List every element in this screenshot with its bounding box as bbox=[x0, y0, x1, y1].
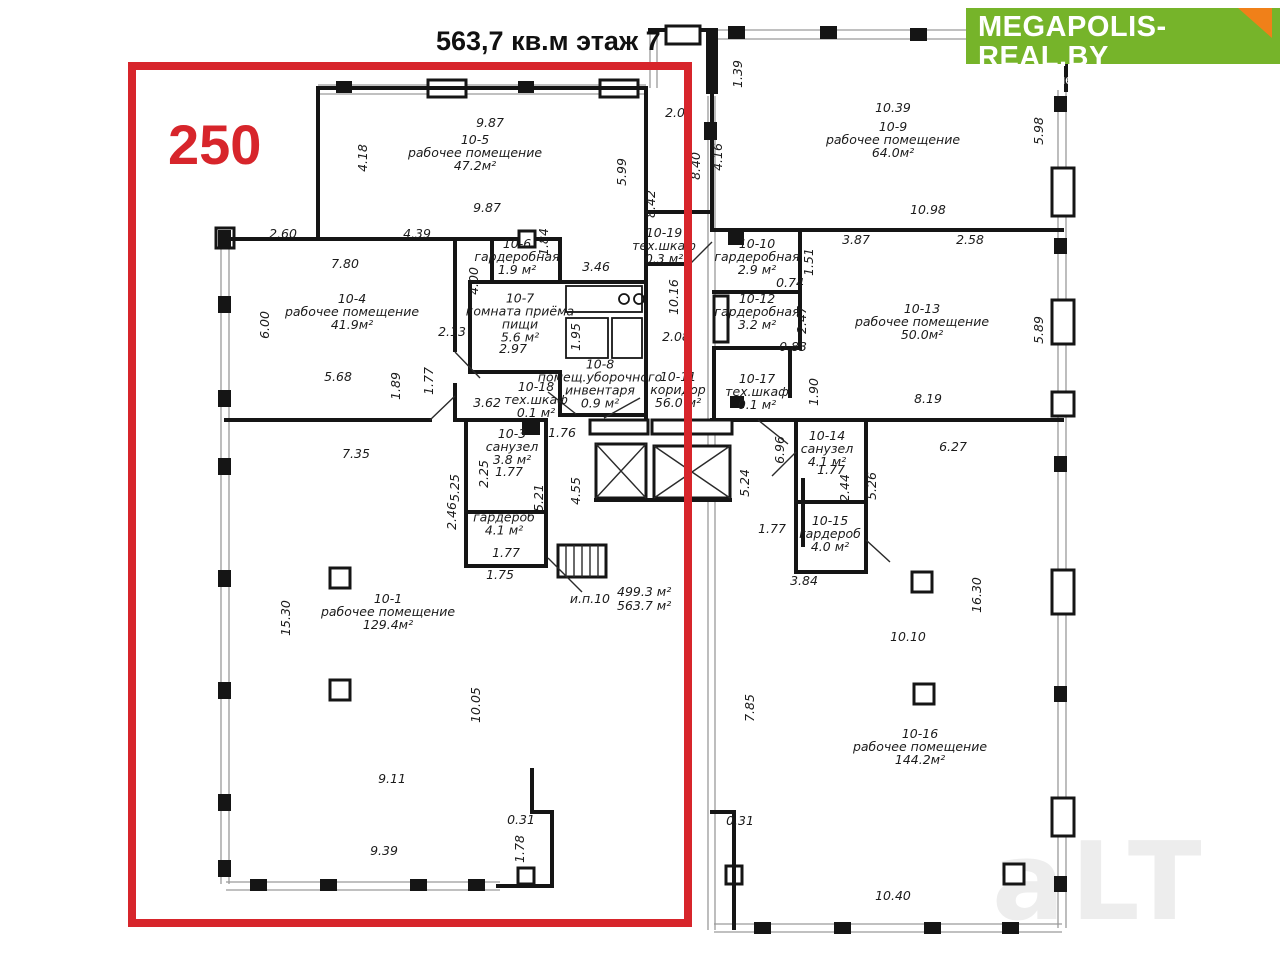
logo-fold-icon bbox=[1238, 8, 1272, 38]
dimension-label: 4.16 bbox=[710, 143, 725, 171]
logo-tagline: портал о коммерческой недвижимости в Бел… bbox=[978, 72, 1270, 104]
dimension-label: 1.39 bbox=[730, 60, 745, 88]
room-label: 0.1 м² bbox=[738, 397, 776, 412]
room-label: 4.0 м² bbox=[811, 539, 849, 554]
room-label: 64.0м² bbox=[872, 145, 914, 160]
dimension-label: 2.58 bbox=[956, 232, 984, 247]
page-title: 563,7 кв.м этаж 7 bbox=[436, 26, 661, 57]
dimension-label: 3.87 bbox=[842, 232, 870, 247]
room-label: 2.9 м² bbox=[738, 262, 776, 277]
dimension-label: 6.96 bbox=[772, 436, 787, 464]
highlight-number: 250 bbox=[168, 112, 261, 177]
dimension-label: 2.47 bbox=[794, 306, 809, 334]
dimension-label: 2.44 bbox=[837, 474, 852, 502]
dimension-label: 5.24 bbox=[737, 469, 752, 497]
dimension-label: 5.98 bbox=[1031, 117, 1046, 145]
logo-brand: MEGAPOLIS-REAL.BY bbox=[978, 12, 1270, 72]
dimension-label: 10.10 bbox=[890, 629, 926, 644]
dimension-label: 6.27 bbox=[939, 439, 967, 454]
room-label: 3.2 м² bbox=[738, 317, 776, 332]
dimension-label: 5.26 bbox=[864, 472, 879, 500]
dimension-label: 1.90 bbox=[806, 378, 821, 406]
room-label: 50.0м² bbox=[901, 327, 943, 342]
dimension-label: 16.30 bbox=[969, 577, 984, 613]
dimension-label: 0.74 bbox=[776, 275, 804, 290]
dimension-label: 1.77 bbox=[758, 521, 786, 536]
dimension-label: 8.19 bbox=[914, 391, 942, 406]
dimension-label: 10.98 bbox=[910, 202, 946, 217]
dimension-label: 1.51 bbox=[801, 248, 816, 276]
dimension-label: 0.83 bbox=[779, 339, 807, 354]
dimension-label: 0.31 bbox=[726, 813, 754, 828]
dimension-label: 10.39 bbox=[875, 100, 911, 115]
room-label: 144.2м² bbox=[895, 752, 945, 767]
dimension-label: 3.84 bbox=[790, 573, 818, 588]
logo-banner[interactable]: MEGAPOLIS-REAL.BY портал о коммерческой … bbox=[966, 8, 1280, 64]
dimension-label: 5.89 bbox=[1031, 316, 1046, 344]
highlight-rectangle bbox=[128, 62, 692, 927]
dimension-label: 10.40 bbox=[875, 888, 911, 903]
dimension-label: 7.85 bbox=[742, 694, 757, 722]
page: aLT bbox=[0, 0, 1280, 960]
